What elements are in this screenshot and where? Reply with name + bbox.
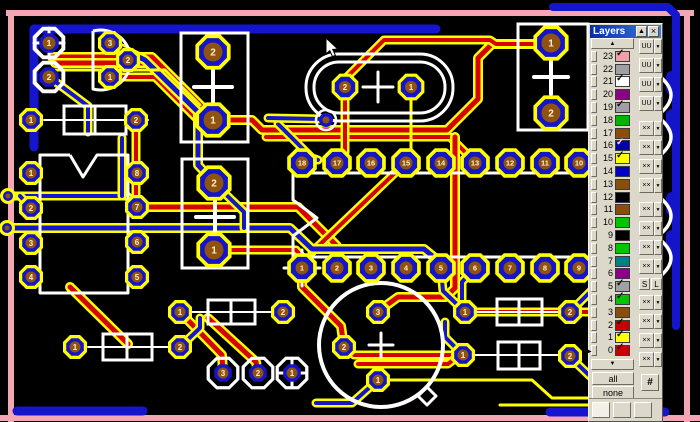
layer-xx-button[interactable]: ×× [639, 159, 654, 174]
layer-pair-control: ××▼ [639, 202, 662, 217]
pad-number: 8 [543, 264, 547, 273]
pad-number: 7 [135, 203, 140, 212]
pad-number: 3 [221, 369, 226, 378]
layer-sl-buttons: SL [639, 278, 663, 290]
layer-visible-check-icon: ✓ [616, 291, 624, 302]
layer-row-9: 9 [591, 229, 630, 242]
layer-xx-button[interactable]: ×× [639, 259, 654, 274]
panel-bottom-box[interactable] [613, 402, 631, 418]
layer-pair-control: UU▼ [639, 58, 662, 73]
layer-row-4: 4✓ [591, 293, 630, 306]
layer-select-box[interactable] [591, 64, 597, 75]
dropdown-arrow-icon[interactable]: ▼ [654, 39, 662, 54]
layer-pair-control: ××▼ [639, 352, 662, 367]
via-hole [323, 117, 330, 124]
pad-number: 1 [376, 376, 381, 385]
layer-xx-button[interactable]: ×× [639, 314, 654, 329]
layer-pair-control: ××▼ [639, 159, 662, 174]
pad-number: 1 [210, 116, 216, 127]
layer-select-box[interactable] [591, 320, 597, 331]
layer-color-swatch[interactable] [615, 115, 630, 126]
dropdown-arrow-icon[interactable]: ▼ [654, 58, 662, 73]
pad-number: 12 [506, 159, 514, 168]
layer-xx-button[interactable]: ×× [639, 240, 654, 255]
layer-select-box[interactable] [591, 140, 597, 151]
dropdown-arrow-icon[interactable]: ▼ [654, 352, 662, 367]
layer-visible-check-icon: ✓ [616, 278, 624, 289]
layer-pair-control: UU▼ [639, 96, 662, 111]
layer-pair-control: UU▼ [639, 77, 662, 92]
layers-panel: Layers ▲ × ▲ 23✓2221✓2019✓181716✓15✓1413… [588, 23, 663, 422]
layer-color-swatch[interactable]: ✓ [615, 345, 630, 356]
layer-row-0: 0✓ [591, 344, 630, 357]
layer-select-box[interactable] [591, 128, 597, 139]
layer-pair-control: UU▼ [639, 39, 662, 54]
pad-number: 2 [281, 308, 286, 317]
layer-pair-control: ××▼ [639, 295, 662, 310]
dropdown-arrow-icon[interactable]: ▼ [654, 159, 662, 174]
layer-number: 13 [598, 180, 615, 189]
pad-number: 18 [298, 159, 306, 168]
layer-color-swatch[interactable] [615, 243, 630, 254]
panel-bottom-toolbar [589, 398, 662, 421]
layer-xx-button[interactable]: ×× [639, 178, 654, 193]
pad-number: 2 [210, 48, 216, 59]
layer-pair-control: ××▼ [639, 221, 662, 236]
layers-scroll-up-button[interactable]: ▲ [591, 38, 634, 49]
layer-color-swatch[interactable]: ✓ [615, 294, 630, 305]
pad-number: 2 [343, 83, 348, 92]
layer-visible-check-icon: ✓ [616, 329, 624, 340]
dropdown-arrow-icon[interactable]: ▼ [654, 77, 662, 92]
dropdown-arrow-icon[interactable]: ▼ [654, 140, 662, 155]
layer-number: 22 [598, 65, 615, 74]
via-hole [6, 194, 11, 199]
pad-number: 3 [376, 308, 381, 317]
layers-list: 23✓2221✓2019✓181716✓15✓141312111098765✓4… [591, 50, 630, 357]
dropdown-arrow-icon[interactable]: ▼ [654, 240, 662, 255]
layer-number: 16 [598, 141, 615, 150]
layer-row-14: 14 [591, 165, 630, 178]
layer-select-box[interactable] [591, 307, 597, 318]
layer-color-swatch[interactable] [615, 204, 630, 215]
dropdown-arrow-icon[interactable]: ▼ [654, 221, 662, 236]
layer-number: 2 [598, 321, 615, 330]
pad-number: 2 [211, 179, 217, 190]
trace-red[interactable] [312, 165, 406, 252]
layer-select-box[interactable] [591, 153, 597, 164]
layer-s-button[interactable]: S [639, 278, 650, 290]
via-hole [5, 226, 10, 231]
layer-pair-control: ××▼ [639, 314, 662, 329]
layer-row-23: 23✓ [591, 50, 630, 63]
layer-color-swatch[interactable]: ✓ [615, 76, 630, 87]
dropdown-arrow-icon[interactable]: ▼ [654, 295, 662, 310]
layer-row-21: 21✓ [591, 76, 630, 89]
layer-number: 6 [598, 269, 615, 278]
pad-number: 6 [473, 264, 477, 273]
layer-pair-control: ××▼ [639, 259, 662, 274]
pad-number: 11 [541, 159, 549, 168]
panel-close-button[interactable]: × [648, 26, 659, 37]
layer-number: 1 [598, 333, 615, 342]
layer-number: 3 [598, 308, 615, 317]
layer-row-12: 12 [591, 191, 630, 204]
layer-number: 11 [598, 205, 615, 214]
pad-number: 2 [178, 343, 183, 352]
layer-select-box[interactable] [591, 76, 597, 87]
layer-select-box[interactable] [591, 332, 597, 343]
pad-number: 1 [108, 73, 113, 82]
pad-number: 2 [342, 343, 347, 352]
pad-number: 1 [178, 308, 183, 317]
layer-visible-check-icon: ✓ [616, 73, 624, 84]
pad-number: 9 [577, 264, 581, 273]
layer-number: 8 [598, 244, 615, 253]
layer-number: 10 [598, 218, 615, 227]
layer-xx-button[interactable]: ×× [639, 333, 654, 348]
layer-pair-control: ××▼ [639, 140, 662, 155]
pad-number: 1 [29, 169, 34, 178]
layer-xx-button[interactable]: ×× [639, 140, 654, 155]
layer-xx-button[interactable]: ×× [639, 352, 654, 367]
layer-color-swatch[interactable]: ✓ [615, 51, 630, 62]
layer-number: 12 [598, 193, 615, 202]
pcb-editor-screen: { "panel": { "title": "Layers", "minimiz… [0, 0, 700, 422]
pad-number: 10 [575, 159, 583, 168]
pad-number: 1 [29, 116, 34, 125]
layer-number: 21 [598, 77, 615, 86]
layer-select-box[interactable] [591, 204, 597, 215]
pad-number: 1 [409, 83, 414, 92]
pad-number: 6 [135, 238, 140, 247]
trace-yellow[interactable] [378, 380, 590, 398]
pad-number: 2 [335, 264, 339, 273]
layer-uu-button[interactable]: UU [639, 39, 654, 54]
dropdown-arrow-icon[interactable]: ▼ [654, 121, 662, 136]
layer-visible-check-icon: ✓ [616, 317, 624, 328]
layer-select-box[interactable] [591, 294, 597, 305]
layer-color-swatch[interactable] [615, 179, 630, 190]
layer-row-11: 11 [591, 204, 630, 217]
layer-number: 4 [598, 295, 615, 304]
layers-all-button[interactable]: all [592, 372, 634, 385]
layer-l-button[interactable]: L [651, 278, 662, 290]
pad-number: 16 [367, 159, 375, 168]
layer-row-13: 13 [591, 178, 630, 191]
layer-pair-control: ××▼ [639, 240, 662, 255]
pad-number: 2 [29, 204, 34, 213]
layer-row-8: 8 [591, 242, 630, 255]
pad-number: 2 [256, 369, 261, 378]
layer-select-box[interactable] [591, 102, 597, 113]
dropdown-arrow-icon[interactable]: ▼ [654, 96, 662, 111]
layer-select-box[interactable] [591, 51, 597, 62]
layer-select-box[interactable] [591, 166, 597, 177]
layer-select-box[interactable] [591, 281, 597, 292]
panel-bottom-box[interactable] [592, 402, 610, 418]
layer-hash-row: # [639, 374, 659, 391]
pad-number: 5 [135, 273, 140, 282]
selected-layer-marker: ▶ [587, 348, 592, 355]
layer-row-18: 18 [591, 114, 630, 127]
layer-number: 7 [598, 257, 615, 266]
dropdown-arrow-icon[interactable]: ▼ [654, 259, 662, 274]
layers-panel-titlebar[interactable]: Layers ▲ × [590, 25, 661, 38]
layer-number: 15 [598, 154, 615, 163]
pad-number: 1 [461, 351, 466, 360]
pad-number: 2 [548, 109, 554, 120]
pad-number: 4 [29, 273, 34, 282]
pad-number: 2 [568, 308, 573, 317]
layer-uu-button[interactable]: UU [639, 96, 654, 111]
layer-number: 17 [598, 129, 615, 138]
layer-pair-control: ××▼ [639, 178, 662, 193]
layer-number: 5 [598, 282, 615, 291]
layer-color-swatch[interactable]: ✓ [615, 153, 630, 164]
layer-color-swatch[interactable] [615, 217, 630, 228]
layer-select-box[interactable] [591, 179, 597, 190]
layer-color-swatch[interactable] [615, 192, 630, 203]
layer-select-box[interactable] [591, 192, 597, 203]
pad-number: 3 [29, 239, 34, 248]
dropdown-arrow-icon[interactable]: ▼ [654, 202, 662, 217]
layer-number: 19 [598, 103, 615, 112]
pad-number: 5 [439, 264, 443, 273]
pad-number: 8 [135, 169, 140, 178]
layer-select-box[interactable] [591, 230, 597, 241]
trace-blue[interactable] [268, 118, 322, 119]
pad-number: 13 [471, 159, 479, 168]
layer-xx-button[interactable]: ×× [639, 202, 654, 217]
layer-color-swatch[interactable] [615, 166, 630, 177]
pad-number: 1 [548, 39, 554, 50]
pad-number: 7 [508, 264, 512, 273]
layer-visible-check-icon: ✓ [616, 48, 624, 59]
layer-pair-control: ××▼ [639, 121, 662, 136]
layer-pair-control: ××▼ [639, 333, 662, 348]
layer-xx-button[interactable]: ×× [639, 121, 654, 136]
layer-select-box[interactable] [591, 268, 597, 279]
layer-visible-check-icon: ✓ [616, 99, 624, 110]
pad-number: 2 [568, 352, 573, 361]
dropdown-arrow-icon[interactable]: ▼ [654, 178, 662, 193]
pad-number: 1 [290, 369, 295, 378]
pad-number: 1 [47, 38, 52, 48]
layers-panel-title: Layers [590, 26, 625, 37]
pad-number: 3 [108, 39, 113, 48]
layer-uu-button[interactable]: UU [639, 77, 654, 92]
silkscreen-path[interactable] [418, 387, 436, 405]
pad-number: 1 [211, 246, 217, 257]
layer-select-box[interactable] [591, 115, 597, 126]
layer-number-button[interactable]: # [641, 374, 659, 391]
layer-select-box[interactable] [591, 89, 597, 100]
layers-scroll-down-button[interactable]: ▼ [591, 359, 634, 370]
layer-select-box[interactable] [591, 217, 597, 228]
layer-xx-button[interactable]: ×× [639, 221, 654, 236]
pad-number: 17 [333, 159, 341, 168]
layer-color-swatch[interactable]: ✓ [615, 102, 630, 113]
pad-number: 14 [437, 159, 446, 168]
layer-row-10: 10 [591, 216, 630, 229]
pad-number: 2 [126, 56, 131, 65]
layer-number: 9 [598, 231, 615, 240]
pad-number: 2 [47, 72, 52, 82]
layer-number: 18 [598, 116, 615, 125]
layer-color-swatch[interactable] [615, 256, 630, 267]
layer-uu-button[interactable]: UU [639, 58, 654, 73]
panel-bottom-box[interactable] [634, 402, 652, 418]
pad-number: 15 [402, 159, 410, 168]
layer-number: 20 [598, 90, 615, 99]
pad-number: 1 [73, 343, 78, 352]
pad-number: 1 [300, 264, 304, 273]
layer-number: 14 [598, 167, 615, 176]
panel-minimize-button[interactable]: ▲ [636, 26, 647, 37]
layer-color-swatch[interactable] [615, 230, 630, 241]
layer-visible-check-icon: ✓ [616, 342, 624, 353]
dropdown-arrow-icon[interactable]: ▼ [654, 314, 662, 329]
pad-number: 1 [463, 308, 468, 317]
layer-row-7: 7 [591, 255, 630, 268]
layer-xx-button[interactable]: ×× [639, 295, 654, 310]
layer-number: 23 [598, 52, 615, 61]
layer-visible-check-icon: ✓ [616, 150, 624, 161]
pad-number: 2 [134, 116, 139, 125]
dropdown-arrow-icon[interactable]: ▼ [654, 333, 662, 348]
layer-select-box[interactable] [591, 256, 597, 267]
layer-select-box[interactable] [591, 243, 597, 254]
layer-visible-check-icon: ✓ [616, 137, 624, 148]
layer-number: 0 [598, 346, 615, 355]
pad-number: 3 [369, 264, 373, 273]
layer-row-15: 15✓ [591, 152, 630, 165]
layer-row-19: 19✓ [591, 101, 630, 114]
